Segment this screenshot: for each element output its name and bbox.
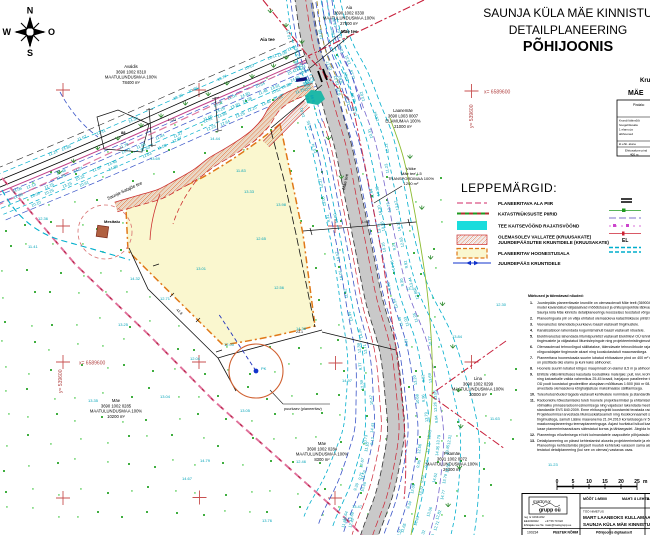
svg-text:6.: 6.: [530, 345, 533, 349]
svg-text:mato@matogrupp.ee: mato@matogrupp.ee: [545, 523, 572, 527]
svg-text:13.98: 13.98: [276, 202, 287, 207]
svg-text:DETAILPLANEERING: DETAILPLANEERING: [509, 23, 627, 37]
svg-text:Projekteerimisel arvestada Mui: Projekteerimisel arvestada Muinsuskaitse…: [537, 413, 650, 417]
svg-text:O: O: [48, 27, 55, 37]
svg-text:12.04: 12.04: [190, 356, 201, 361]
svg-text:8300 m²: 8300 m²: [314, 457, 330, 462]
svg-text:JUURDEPÄÄSUTEE KRUNTIDELE (KRU: JUURDEPÄÄSUTEE KRUNTIDELE (KRUUSAKATE): [498, 239, 609, 245]
svg-text:14.97: 14.97: [342, 378, 353, 383]
svg-text:MAATULUNDUSMAA 100%: MAATULUNDUSMAA 100%: [296, 452, 349, 457]
svg-text:L=57: L=57: [362, 220, 370, 224]
svg-text:Mesitalu: Mesitalu: [104, 219, 121, 224]
svg-text:Mäe tee: Mäe tee: [341, 29, 358, 34]
svg-text:3690 1002 0285: 3690 1002 0285: [101, 403, 132, 408]
svg-text:Aia: Aia: [346, 5, 353, 10]
svg-text:SAUNJA KÜLA MÄE KINNISTU: SAUNJA KÜLA MÄE KINNISTU: [483, 6, 650, 20]
svg-text:27800 m²: 27800 m²: [340, 21, 358, 26]
svg-text:3690 1002 0284: 3690 1002 0284: [307, 446, 338, 451]
svg-text:PEETER NÕMM: PEETER NÕMM: [553, 530, 578, 535]
svg-text:Kanalisatsioon lahendada kogum: Kanalisatsioon lahendada kogumismahuti b…: [537, 328, 645, 332]
svg-text:y= 539600: y= 539600: [58, 369, 64, 393]
svg-text:9.96: 9.96: [420, 393, 426, 402]
svg-text:9.32: 9.32: [420, 373, 426, 382]
svg-text:400 m: 400 m: [630, 153, 639, 157]
svg-text:13.: 13.: [530, 439, 535, 443]
svg-text:3690 L003 0007: 3690 L003 0007: [388, 113, 419, 118]
svg-text:13.69: 13.69: [150, 156, 161, 161]
svg-text:MAATULUNDUSMAA 100%: MAATULUNDUSMAA 100%: [105, 75, 158, 80]
svg-text:PK: PK: [261, 366, 267, 371]
svg-text:14.79: 14.79: [200, 458, 211, 463]
svg-text:13.04: 13.04: [160, 394, 171, 399]
svg-text:mudel kavandatud väljasaatvad: mudel kavandatud väljasaatvad mõõdistuse…: [537, 306, 650, 310]
svg-text:12.30: 12.30: [496, 302, 507, 307]
svg-text:L=23: L=23: [168, 118, 176, 122]
svg-text:3690 1002 0299: 3690 1002 0299: [463, 381, 494, 386]
svg-text:Radooniohu tõkestamiseks tuleb: Radooniohu tõkestamiseks tuleb hoonete p…: [537, 399, 650, 403]
svg-text:Mäe: Mäe: [318, 441, 327, 446]
svg-text:maakonnaplaneeringu teemaplane: maakonnaplaneeringu teemaplaneeringuga. …: [537, 422, 650, 426]
svg-text:12.36: 12.36: [38, 216, 49, 221]
svg-text:1200 m²: 1200 m²: [404, 181, 419, 186]
svg-text:MAATULUNDUSMAA 100%: MAATULUNDUSMAA 100%: [426, 462, 479, 467]
svg-text:JUURDEPÄÄS KRUNTIDELE: JUURDEPÄÄS KRUNTIDELE: [498, 260, 561, 266]
svg-text:ELAMUMAA 100%: ELAMUMAA 100%: [385, 119, 420, 124]
svg-text:12.71: 12.71: [160, 296, 171, 301]
svg-text:10200 m²: 10200 m²: [107, 414, 125, 419]
svg-text:30000 m²: 30000 m²: [469, 392, 487, 397]
svg-text:TÖÖ NIMETUS: TÖÖ NIMETUS: [583, 510, 604, 514]
svg-text:Kru: Kru: [640, 78, 650, 84]
svg-text:MÕÕT 1:M500: MÕÕT 1:M500: [583, 496, 607, 501]
svg-text:21000 m²: 21000 m²: [394, 124, 412, 129]
svg-text:13.79: 13.79: [423, 411, 429, 422]
svg-text:3691 1002 0072: 3691 1002 0072: [437, 456, 468, 461]
svg-text:8.: 8.: [530, 367, 533, 371]
svg-text:11.23: 11.23: [548, 462, 558, 467]
svg-text:12.65: 12.65: [256, 236, 267, 241]
svg-text:Planeeringu elluviimisega ei t: Planeeringu elluviimisega ei tohi kolman…: [537, 433, 650, 437]
svg-text:10.68: 10.68: [414, 393, 420, 404]
svg-text:78400 m²: 78400 m²: [122, 80, 140, 85]
svg-text:Planeeringuala piir on välja e: Planeeringuala piir on välja ehitatud ol…: [537, 316, 650, 320]
svg-text:MART LAANEOKS KULLAMAA VALD: MART LAANEOKS KULLAMAA VALD: [583, 515, 650, 520]
svg-text:3.: 3.: [530, 322, 533, 326]
svg-text:Pindala:: Pindala:: [633, 103, 645, 107]
svg-text:võrguvaldajate tingimuste alus: võrguvaldajate tingimuste alusel ning ko…: [537, 350, 647, 354]
svg-text:on püstitada üks elamu ja kuni: on püstitada üks elamu ja kuni kaks abih…: [537, 361, 612, 365]
svg-text:Tuleohutusnõuded tagada vastav: Tuleohutusnõuded tagada vastavalt kehtiv…: [537, 393, 650, 397]
svg-text:Detailplaneering on pärast keh: Detailplaneering on pärast kehtestamist …: [537, 439, 650, 443]
svg-text:hoogehitusala: hoogehitusala: [619, 123, 638, 127]
svg-text:Märkused ja täiendavad nõuded:: Märkused ja täiendavad nõuded:: [528, 294, 584, 298]
svg-text:9.77: 9.77: [357, 361, 363, 370]
svg-text:y= 539600: y= 539600: [469, 104, 475, 128]
svg-text:SAUNJA KÜLA MÄE KINNISTU: SAUNJA KÜLA MÄE KINNISTU: [583, 521, 650, 527]
svg-text:12.00: 12.00: [224, 342, 235, 347]
svg-text:100234: 100234: [527, 531, 538, 535]
svg-text:88: 88: [121, 130, 126, 135]
svg-text:14.32: 14.32: [130, 276, 141, 281]
svg-text:OÜ poolt koostatud geodeetilin: OÜ poolt koostatud geodeetiline alusplaa…: [537, 382, 650, 386]
svg-text:PÕHIJOONIS: PÕHIJOONIS: [523, 37, 614, 55]
svg-text:Laanemäe: Laanemäe: [393, 108, 413, 113]
svg-text:Ehitiste välisviimistluses kas: Ehitiste välisviimistluses kasutada lood…: [537, 373, 650, 377]
svg-text:abihooned: abihooned: [619, 132, 633, 136]
svg-text:9.87: 9.87: [403, 337, 409, 346]
svg-text:grupp oü: grupp oü: [539, 508, 561, 514]
svg-text:Mäe: Mäe: [112, 398, 121, 403]
svg-text:Saunja küla Mäe kinnistu detai: Saunja küla Mäe kinnistu detailplaneerin…: [537, 310, 650, 314]
svg-text:13.05: 13.05: [240, 408, 251, 413]
svg-text:4.: 4.: [530, 328, 533, 332]
svg-text:13.85: 13.85: [432, 389, 438, 400]
svg-text:12.56: 12.56: [274, 285, 285, 290]
svg-text:13.34: 13.34: [406, 286, 417, 291]
svg-text:11.: 11.: [530, 399, 535, 403]
svg-text:12.: 12.: [530, 433, 535, 437]
svg-text:10.47: 10.47: [368, 394, 374, 405]
svg-text:11.83: 11.83: [236, 168, 246, 173]
svg-text:11.41: 11.41: [28, 244, 38, 249]
svg-text:Ehitajate tee 5a: Ehitajate tee 5a: [524, 523, 544, 527]
svg-text:võimaliku pinnaseradooni esine: võimaliku pinnaseradooni esinemisega nin…: [537, 403, 650, 407]
svg-text:m: m: [643, 479, 648, 485]
svg-text:1.: 1.: [530, 301, 533, 305]
svg-text:11.63: 11.63: [490, 416, 500, 421]
svg-text:13.35: 13.35: [88, 398, 99, 403]
svg-text:x= 6589600: x= 6589600: [79, 361, 105, 367]
svg-text:Olemasolevad tehnovõrgud säili: Olemasolevad tehnovõrgud säilitatakse, t…: [537, 345, 650, 349]
svg-text:tingimustele ja väljastatud li: tingimustele ja väljastatud liitumislepi…: [537, 339, 650, 343]
svg-text:KATASTRIÜKSUSTE PIIRID: KATASTRIÜKSUSTE PIIRID: [498, 211, 558, 217]
svg-text:PLANEERITAVA ALA PIIR: PLANEERITAVA ALA PIIR: [498, 201, 554, 206]
svg-text:13.25: 13.25: [118, 322, 129, 327]
svg-text:Hoonete suurim lubatud kõrgus: Hoonete suurim lubatud kõrgus maapinnast…: [537, 367, 650, 371]
svg-text:13.47: 13.47: [352, 504, 363, 509]
svg-text:Planeeritava hoonestusala suur: Planeeritava hoonestusala suurim lubatud…: [537, 356, 650, 360]
svg-text:13.26: 13.26: [432, 401, 438, 412]
svg-text:kt ehit. alune: kt ehit. alune: [619, 142, 636, 146]
svg-text:lusse planeerimisseaduses säte: lusse planeerimisseaduses sätestatud kor…: [537, 427, 650, 431]
svg-text:TEE KAITSEVÖÖND RAJATISVÖÖND: TEE KAITSEVÖÖND RAJATISVÖÖND: [498, 223, 580, 229]
svg-text:12.46: 12.46: [296, 459, 307, 464]
svg-text:Elektrivarustus lahendada liit: Elektrivarustus lahendada liitumispunkti…: [537, 334, 650, 338]
svg-text:testatud detailplaneering (kui: testatud detailplaneering (kui see on ol…: [537, 448, 633, 452]
svg-text:1 elamu ja: 1 elamu ja: [619, 128, 633, 132]
svg-text:Planeeringu kehtestamise järgs: Planeeringu kehtestamise järgselt muutub…: [537, 444, 650, 448]
svg-text:MAHT: 8 LEHTE: MAHT: 8 LEHTE: [622, 497, 650, 501]
svg-text:W: W: [3, 27, 12, 37]
svg-text:standardile EVS 840:2009. Enne: standardile EVS 840:2009. Enne ehituspro…: [537, 408, 650, 412]
svg-text:arvestada olemasoleva kõrghalj: arvestada olemasoleva kõrghaljastuse mak…: [537, 387, 643, 391]
svg-text:13.01: 13.01: [196, 266, 207, 271]
svg-text:S: S: [27, 48, 33, 58]
svg-text:10.: 10.: [530, 393, 535, 397]
svg-text:14.44: 14.44: [210, 136, 221, 141]
svg-text:7.: 7.: [530, 356, 533, 360]
svg-text:ning katusekalle valida vahemi: ning katusekalle valida vahemikus 25-45 …: [537, 377, 650, 381]
svg-text:MÄE: MÄE: [628, 89, 644, 97]
svg-text:23.1: 23.1: [296, 330, 303, 334]
svg-text:LEPPEMÄRGID:: LEPPEMÄRGID:: [461, 181, 557, 195]
svg-text:13.33: 13.33: [244, 189, 255, 194]
svg-text:Põhijoonis digitaalselt: Põhijoonis digitaalselt: [596, 531, 633, 535]
svg-text:2.: 2.: [530, 316, 533, 320]
svg-text:13.76: 13.76: [262, 518, 273, 523]
svg-text:Veevarustus lahendada puurkaev: Veevarustus lahendada puurkaevu baasil v…: [537, 322, 639, 326]
svg-text:Avaldis: Avaldis: [124, 64, 137, 69]
svg-text:EL: EL: [622, 238, 628, 244]
svg-text:PLANEERITAV HOONESTUSALA: PLANEERITAV HOONESTUSALA: [498, 251, 570, 256]
svg-text:N: N: [27, 6, 34, 16]
svg-text:14.67: 14.67: [182, 476, 193, 481]
svg-text:5.: 5.: [530, 334, 533, 338]
svg-text:x= 6589600: x= 6589600: [484, 90, 510, 96]
svg-text:9.84: 9.84: [433, 414, 439, 423]
svg-text:Lina: Lina: [474, 376, 483, 381]
svg-text:Krundi läbimõõt: Krundi läbimõõt: [619, 119, 640, 123]
svg-text:3690 1002 0330: 3690 1002 0330: [334, 10, 365, 15]
svg-text:tingimustega, samuti Lääne maa: tingimustega, samuti Lääne maavanema 21.…: [537, 417, 650, 421]
svg-text:13.84: 13.84: [452, 334, 463, 339]
svg-text:Aia tee: Aia tee: [260, 37, 275, 42]
svg-text:Juurdepääs planeeritavale krun: Juurdepääs planeeritavale krundile on ol…: [537, 301, 650, 305]
svg-text:3690 1002 0310: 3690 1002 0310: [116, 69, 147, 74]
svg-text:MAATULUNDUSMAA 100%: MAATULUNDUSMAA 100%: [90, 409, 143, 414]
svg-text:puurkaev (planeeritav): puurkaev (planeeritav): [284, 407, 323, 411]
svg-text:OLEMASOLEV VALLATEE (KRUUSAKAT: OLEMASOLEV VALLATEE (KRUUSAKATE): [498, 235, 592, 240]
svg-text:9.: 9.: [530, 373, 533, 377]
